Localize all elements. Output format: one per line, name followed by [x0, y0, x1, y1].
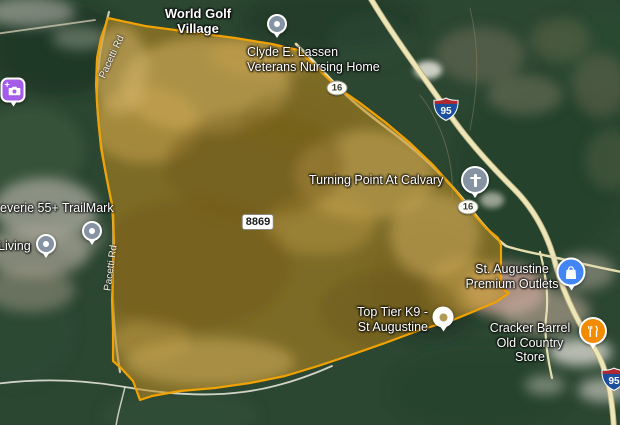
fork-knife-icon [587, 325, 599, 338]
shopping-bag-icon [565, 265, 578, 279]
poi-label-top-tier-k9[interactable]: Top Tier K9 - St Augustine [328, 305, 428, 334]
poi-label-living[interactable]: Living [0, 239, 31, 254]
route-16-shield-north: 16 [327, 81, 348, 96]
shopping-pin-premium-outlets[interactable] [557, 258, 586, 287]
cross-icon [469, 174, 481, 187]
poi-label-trailmark[interactable]: everie 55+ TrailMark [0, 201, 114, 216]
interstate-95-shield-edge: 95 [601, 368, 620, 397]
dining-pin-cracker-barrel[interactable] [579, 317, 607, 345]
poi-label-premium-outlets[interactable]: St. Augustine Premium Outlets [465, 262, 558, 291]
satellite-map-canvas[interactable]: World Golf Village Clyde E. Lassen Veter… [0, 0, 620, 425]
poi-dot-icon [82, 221, 102, 241]
church-pin-turning-point[interactable] [461, 166, 489, 194]
poi-pin-living[interactable] [36, 234, 56, 254]
poi-label-clyde-lassen[interactable]: Clyde E. Lassen Veterans Nursing Home [247, 45, 380, 74]
poi-label-cracker-barrel[interactable]: Cracker Barrel Old Country Store [485, 321, 575, 365]
interstate-95-shield-text: 95 [440, 106, 452, 117]
parcel-number-label: 8869 [242, 214, 274, 230]
poi-dot-icon [36, 234, 56, 254]
locality-label-world-golf-village[interactable]: World Golf Village [165, 6, 231, 36]
attraction-pin-photo[interactable]: + [1, 78, 26, 103]
interstate-95-edge-shield-text: 95 [608, 376, 620, 387]
poi-dot-icon [433, 307, 454, 328]
interstate-95-shield: 95 [433, 98, 460, 127]
poi-pin-trailmark[interactable] [82, 221, 102, 241]
poi-dot-icon [267, 14, 287, 34]
poi-pin-clyde-lassen[interactable] [267, 14, 287, 34]
poi-pin-top-tier-k9[interactable] [433, 307, 454, 328]
camera-icon: + [1, 78, 26, 103]
poi-label-turning-point[interactable]: Turning Point At Calvary [309, 173, 443, 188]
